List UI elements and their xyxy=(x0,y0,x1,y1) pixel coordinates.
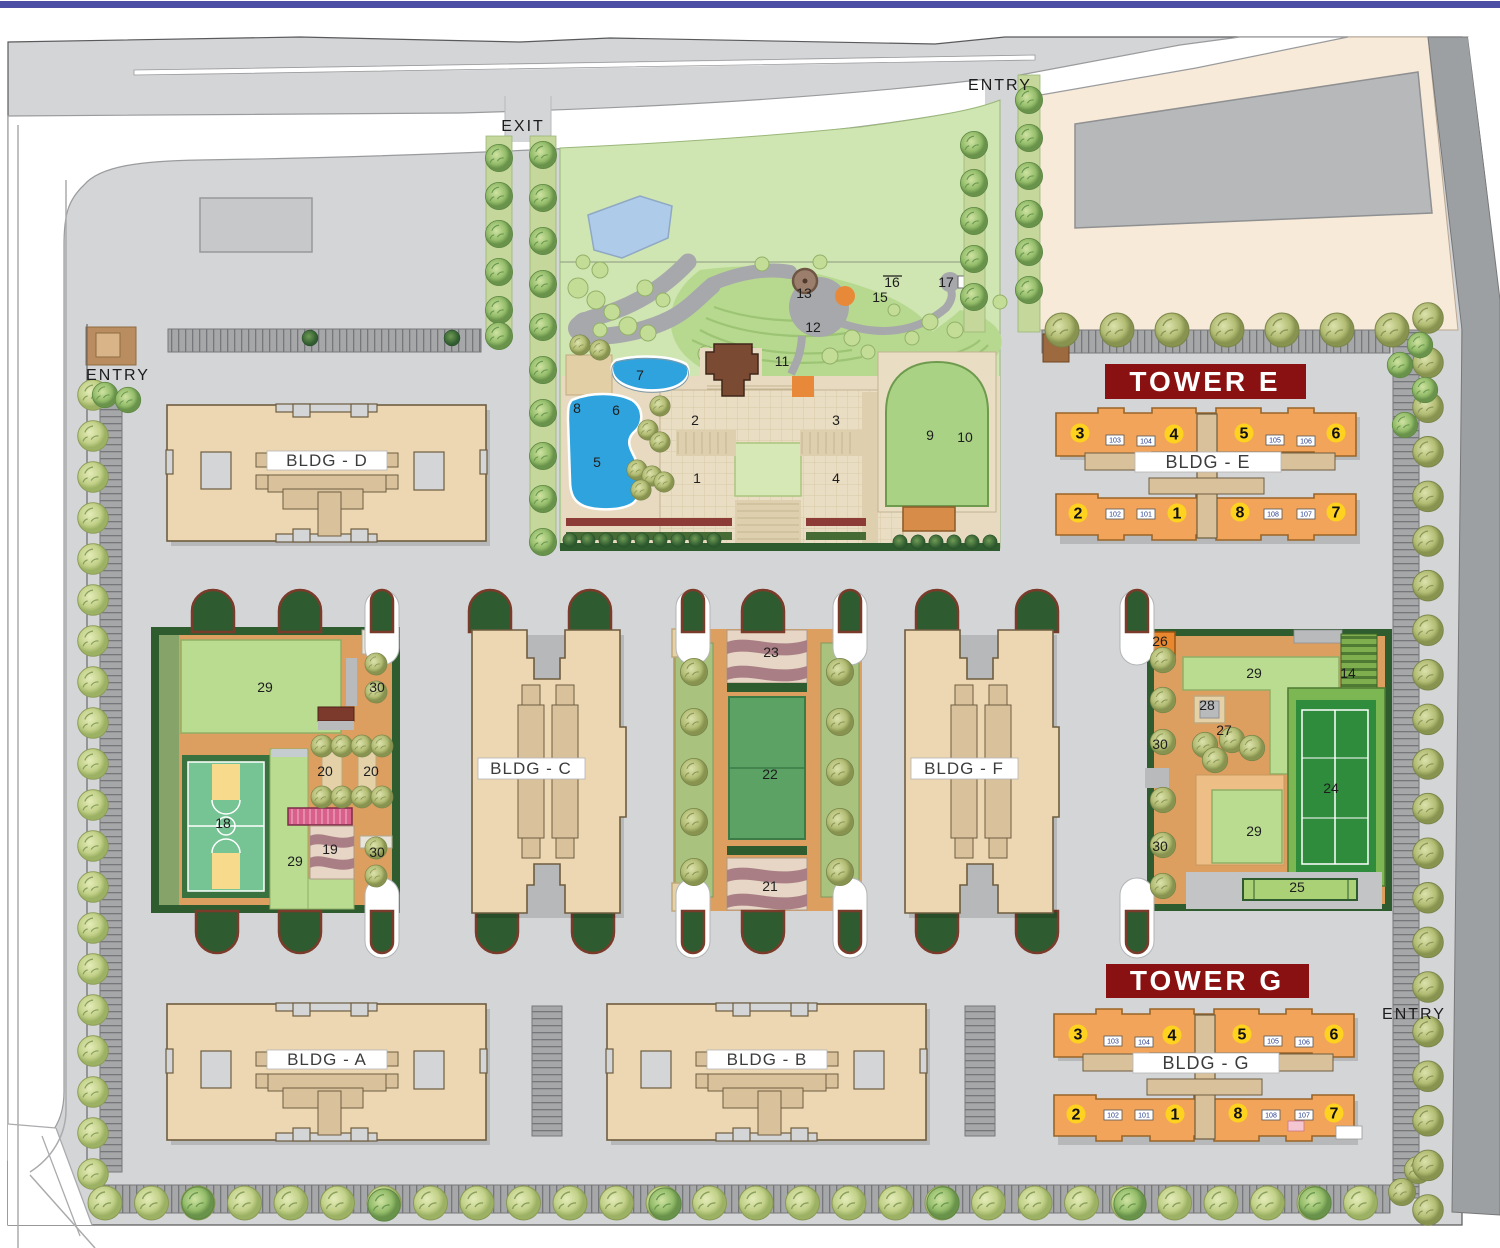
svg-text:9: 9 xyxy=(926,427,934,443)
svg-text:20: 20 xyxy=(317,763,333,779)
svg-text:29: 29 xyxy=(287,853,303,869)
svg-text:7: 7 xyxy=(1332,505,1341,522)
svg-text:103: 103 xyxy=(1109,438,1121,445)
svg-text:18: 18 xyxy=(215,815,231,831)
svg-text:6: 6 xyxy=(1330,1027,1339,1044)
svg-text:8: 8 xyxy=(1234,1106,1243,1123)
svg-text:7: 7 xyxy=(636,367,644,383)
svg-text:106: 106 xyxy=(1298,1040,1310,1047)
svg-text:25: 25 xyxy=(1289,879,1305,895)
svg-text:27: 27 xyxy=(1216,722,1232,738)
svg-text:19: 19 xyxy=(322,841,338,857)
svg-text:11: 11 xyxy=(775,353,790,369)
svg-text:2: 2 xyxy=(1074,506,1083,523)
svg-text:24: 24 xyxy=(1323,780,1339,796)
svg-text:102: 102 xyxy=(1107,1113,1119,1120)
svg-text:BLDG - E: BLDG - E xyxy=(1165,452,1250,472)
svg-text:28: 28 xyxy=(1199,697,1215,713)
svg-text:13: 13 xyxy=(796,285,812,301)
svg-text:105: 105 xyxy=(1269,438,1281,445)
svg-text:101: 101 xyxy=(1140,512,1152,519)
svg-text:BLDG - B: BLDG - B xyxy=(727,1050,808,1069)
svg-text:104: 104 xyxy=(1140,439,1152,446)
svg-text:29: 29 xyxy=(1246,665,1262,681)
svg-text:105: 105 xyxy=(1267,1039,1279,1046)
svg-text:4: 4 xyxy=(1168,1028,1177,1045)
svg-text:BLDG - D: BLDG - D xyxy=(286,451,368,470)
svg-text:TOWER G: TOWER G xyxy=(1130,965,1284,996)
svg-text:12: 12 xyxy=(805,319,821,335)
svg-text:107: 107 xyxy=(1300,512,1312,519)
svg-text:6: 6 xyxy=(1332,426,1341,443)
svg-text:106: 106 xyxy=(1300,439,1312,446)
svg-text:3: 3 xyxy=(1076,426,1085,443)
svg-text:ENTRY: ENTRY xyxy=(1382,1006,1446,1023)
svg-text:TOWER E: TOWER E xyxy=(1129,366,1280,397)
svg-text:10: 10 xyxy=(957,429,973,445)
svg-text:23: 23 xyxy=(763,644,779,660)
svg-text:4: 4 xyxy=(832,470,840,486)
svg-text:29: 29 xyxy=(257,679,273,695)
svg-text:BLDG - A: BLDG - A xyxy=(287,1050,367,1069)
svg-text:108: 108 xyxy=(1267,512,1279,519)
svg-text:1: 1 xyxy=(1173,506,1182,523)
svg-text:5: 5 xyxy=(1240,426,1249,443)
svg-text:21: 21 xyxy=(762,878,778,894)
svg-text:5: 5 xyxy=(593,454,601,470)
svg-text:3: 3 xyxy=(832,412,840,428)
svg-text:3: 3 xyxy=(1074,1027,1083,1044)
svg-text:15: 15 xyxy=(872,289,888,305)
svg-text:102: 102 xyxy=(1109,512,1121,519)
svg-text:BLDG - C: BLDG - C xyxy=(490,759,572,778)
svg-text:30: 30 xyxy=(369,844,385,860)
svg-text:1: 1 xyxy=(1171,1107,1180,1124)
svg-text:6: 6 xyxy=(612,402,620,418)
svg-text:30: 30 xyxy=(1152,736,1168,752)
svg-text:29: 29 xyxy=(1246,823,1262,839)
svg-text:14: 14 xyxy=(1340,665,1356,681)
svg-text:22: 22 xyxy=(762,766,778,782)
svg-text:EXIT: EXIT xyxy=(501,118,545,135)
svg-text:108: 108 xyxy=(1265,1113,1277,1120)
svg-text:7: 7 xyxy=(1330,1106,1339,1123)
svg-text:101: 101 xyxy=(1138,1113,1150,1120)
svg-text:BLDG - F: BLDG - F xyxy=(924,759,1004,778)
svg-text:ENTRY: ENTRY xyxy=(968,77,1032,94)
svg-text:4: 4 xyxy=(1170,427,1179,444)
svg-text:30: 30 xyxy=(1152,838,1168,854)
svg-text:1: 1 xyxy=(693,470,701,486)
svg-text:5: 5 xyxy=(1238,1027,1247,1044)
svg-text:BLDG - G: BLDG - G xyxy=(1162,1053,1249,1073)
svg-text:8: 8 xyxy=(573,400,581,416)
svg-text:26: 26 xyxy=(1152,633,1168,649)
svg-text:8: 8 xyxy=(1236,505,1245,522)
svg-text:104: 104 xyxy=(1138,1040,1150,1047)
svg-text:2: 2 xyxy=(1072,1107,1081,1124)
svg-text:30: 30 xyxy=(369,679,385,695)
svg-text:2: 2 xyxy=(691,412,699,428)
svg-text:107: 107 xyxy=(1298,1113,1310,1120)
svg-text:17: 17 xyxy=(938,274,954,290)
svg-text:103: 103 xyxy=(1107,1039,1119,1046)
svg-text:ENTRY: ENTRY xyxy=(86,367,150,384)
svg-text:20: 20 xyxy=(363,763,379,779)
